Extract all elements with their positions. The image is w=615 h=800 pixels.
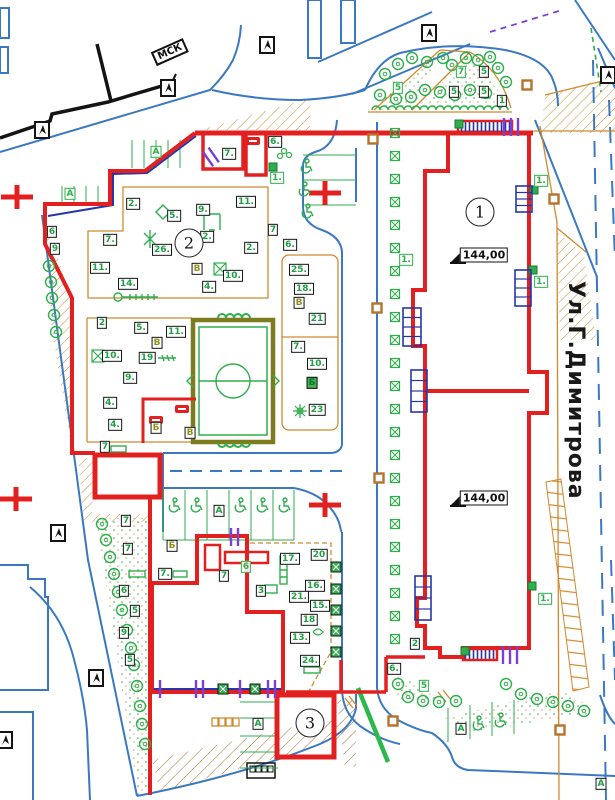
map-item-label: 7. — [222, 148, 236, 160]
map-item-label: 6. — [387, 663, 401, 675]
map-item-label: 11. — [236, 196, 256, 208]
map-item-label: 5 — [130, 605, 140, 617]
map-item-label: 5 — [449, 86, 459, 98]
map-item-label: В — [152, 337, 163, 349]
map-item-label: 1. — [534, 175, 548, 187]
map-item-label: 17. — [280, 553, 300, 565]
map-item-label: В — [192, 263, 203, 275]
map-item-label: 6. — [268, 136, 282, 148]
map-item-label: 9. — [123, 372, 137, 384]
map-item-label: Б — [167, 540, 178, 552]
map-item-label: 1. — [538, 593, 552, 605]
map-item-label: 1. — [534, 276, 548, 288]
map-item-label: 5 — [419, 680, 429, 692]
map-item-label: 11. — [90, 262, 110, 274]
map-item-label: 21. — [289, 591, 309, 603]
map-item-label: 7 — [100, 441, 110, 453]
map-item-label: 10. — [307, 358, 327, 370]
building-number-marker: 1 — [466, 198, 495, 227]
map-item-label: 1. — [270, 172, 284, 184]
site-plan: 7.6.1.AA2.5.9.11.72.2.6.26.7.11.14.В10.4… — [0, 0, 615, 800]
map-item-label: A — [456, 723, 467, 735]
map-item-label: 18 — [301, 614, 318, 626]
map-item-label: 15. — [310, 600, 330, 612]
map-item-label: 7 — [123, 543, 133, 555]
map-item-label: 5 — [125, 654, 135, 666]
map-item-label: 21 — [309, 313, 326, 325]
map-item-label: 4. — [108, 419, 122, 431]
map-item-label: 6 — [119, 585, 129, 597]
map-item-label: 2. — [126, 198, 140, 210]
map-item-label: 5 — [479, 66, 489, 78]
street-name-label: Ул.Г.Димитрова — [563, 281, 588, 500]
elevation-mark: 144,00 — [460, 248, 508, 263]
map-item-label: A — [214, 505, 225, 517]
map-item-label: 2. — [244, 242, 258, 254]
map-item-label: 5 — [479, 86, 489, 98]
label-overlay: 7.6.1.AA2.5.9.11.72.2.6.26.7.11.14.В10.4… — [0, 0, 615, 800]
map-item-label: 25. — [289, 264, 309, 276]
building-number-marker: 2 — [175, 229, 204, 258]
map-item-label: 5 — [393, 82, 403, 94]
map-item-label: 7 — [219, 570, 229, 582]
map-item-label: 20 — [311, 549, 328, 561]
map-item-label: 11. — [166, 326, 186, 338]
map-item-label: 3 — [256, 585, 266, 597]
map-item-label: 24. — [300, 655, 320, 667]
map-item-label: A — [253, 718, 264, 730]
map-item-label: 9 — [50, 243, 60, 255]
map-item-label: 14. — [118, 278, 138, 290]
map-item-label: A — [151, 146, 162, 158]
map-item-label: 2 — [410, 638, 420, 650]
map-item-label: 4. — [202, 281, 216, 293]
map-item-label: 1 — [497, 95, 507, 107]
map-item-label: 7. — [291, 341, 305, 353]
map-item-label: 10. — [223, 270, 243, 282]
map-item-label: 5. — [134, 322, 148, 334]
map-item-label: 7 — [268, 224, 278, 236]
map-item-label: 10. — [102, 350, 122, 362]
map-item-label: 1. — [399, 254, 413, 266]
map-item-label: 2 — [97, 317, 107, 329]
elevation-mark: 144,00 — [460, 491, 508, 506]
map-item-label: 6 — [241, 561, 251, 573]
map-item-label: 13. — [290, 632, 310, 644]
map-item-label: В — [185, 427, 196, 439]
building-number-marker: 3 — [296, 709, 325, 738]
map-item-label: Б — [151, 422, 162, 434]
map-item-label: 6 — [47, 226, 57, 238]
map-item-label: 7. — [103, 234, 117, 246]
map-item-label: A — [65, 188, 76, 200]
map-item-label: 7. — [158, 568, 172, 580]
map-item-label: 18. — [294, 283, 314, 295]
map-item-label: Б — [307, 377, 318, 389]
map-item-label: В — [294, 297, 305, 309]
map-item-label: 26. — [152, 244, 172, 256]
map-item-label: A — [596, 778, 607, 790]
map-item-label: 7 — [121, 515, 131, 527]
map-item-label: 4. — [103, 397, 117, 409]
map-item-label: 7 — [456, 66, 466, 78]
map-item-label: 9. — [196, 204, 210, 216]
map-item-label: 6. — [283, 239, 297, 251]
map-item-label: 23 — [309, 404, 326, 416]
map-item-label: 9 — [119, 627, 129, 639]
map-item-label: 19 — [139, 352, 156, 364]
map-item-label: 5. — [167, 210, 181, 222]
